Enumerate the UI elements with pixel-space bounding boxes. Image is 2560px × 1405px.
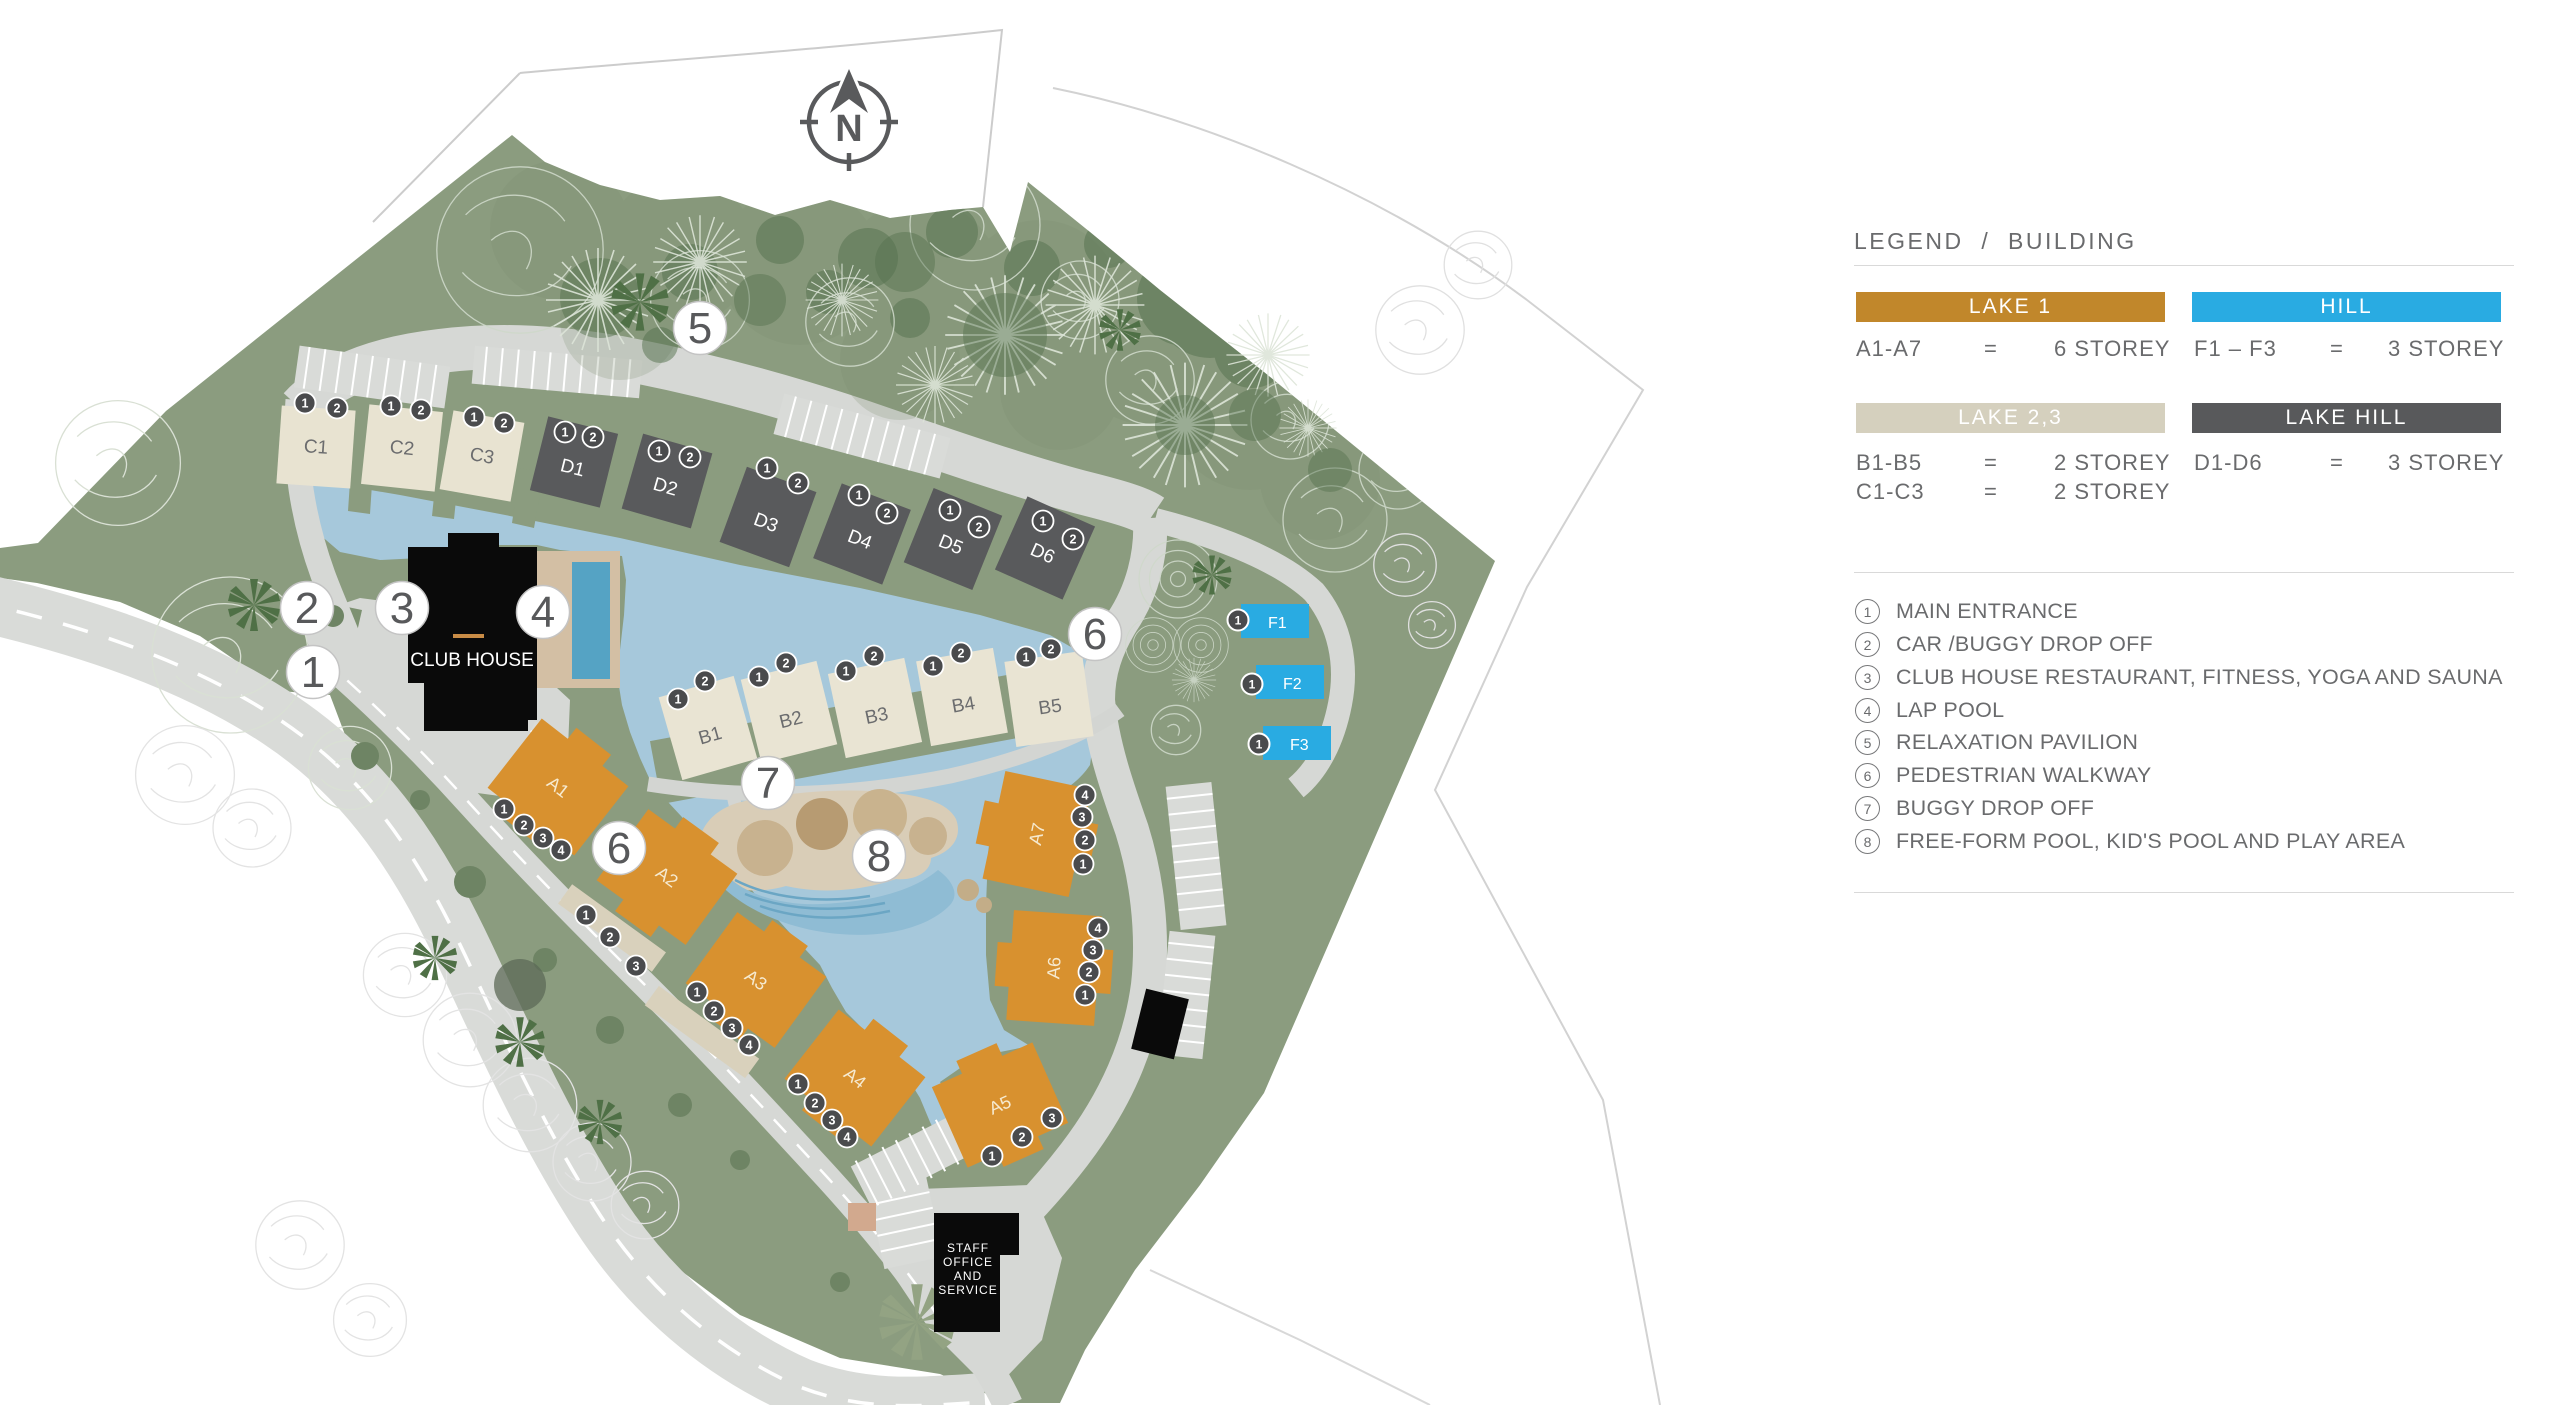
svg-text:1: 1 <box>302 397 309 411</box>
svg-text:1: 1 <box>675 693 682 707</box>
svg-text:2: 2 <box>1082 834 1089 848</box>
svg-text:1: 1 <box>989 1150 996 1164</box>
svg-text:5: 5 <box>688 304 712 353</box>
svg-text:C3: C3 <box>468 444 496 469</box>
svg-text:A6: A6 <box>1043 956 1064 979</box>
svg-text:B5: B5 <box>1037 695 1063 719</box>
svg-text:1: 1 <box>1040 515 1047 529</box>
svg-text:1: 1 <box>930 660 937 674</box>
svg-text:1: 1 <box>583 909 590 923</box>
svg-text:2: 2 <box>687 451 694 465</box>
svg-text:1: 1 <box>1256 738 1263 752</box>
svg-text:F2: F2 <box>1283 676 1302 693</box>
svg-text:2: 2 <box>958 647 965 661</box>
svg-text:2: 2 <box>1070 533 1077 547</box>
svg-text:2: 2 <box>1086 966 1093 980</box>
svg-text:4: 4 <box>844 1131 851 1145</box>
svg-text:2: 2 <box>590 431 597 445</box>
svg-text:AND: AND <box>954 1269 982 1283</box>
svg-text:2: 2 <box>501 417 508 431</box>
svg-text:1: 1 <box>1249 678 1256 692</box>
svg-text:2: 2 <box>521 819 528 833</box>
svg-text:2: 2 <box>702 675 709 689</box>
svg-text:7: 7 <box>756 759 780 808</box>
svg-text:1: 1 <box>656 445 663 459</box>
svg-text:STAFF: STAFF <box>947 1241 989 1255</box>
svg-text:1: 1 <box>1235 614 1242 628</box>
svg-text:2: 2 <box>976 521 983 535</box>
svg-text:1: 1 <box>795 1078 802 1092</box>
svg-text:1: 1 <box>1023 651 1030 665</box>
svg-text:1: 1 <box>1082 989 1089 1003</box>
svg-text:8: 8 <box>867 832 891 881</box>
svg-text:1: 1 <box>856 489 863 503</box>
svg-text:2: 2 <box>1019 1131 1026 1145</box>
svg-text:1: 1 <box>756 671 763 685</box>
svg-text:2: 2 <box>871 650 878 664</box>
svg-text:3: 3 <box>1090 944 1097 958</box>
svg-text:4: 4 <box>746 1039 753 1053</box>
svg-text:CLUB HOUSE: CLUB HOUSE <box>410 650 534 671</box>
svg-text:4: 4 <box>558 844 565 858</box>
svg-text:4: 4 <box>1082 789 1089 803</box>
svg-text:1: 1 <box>301 648 325 697</box>
svg-text:3: 3 <box>633 960 640 974</box>
svg-text:2: 2 <box>418 404 425 418</box>
svg-text:3: 3 <box>390 584 414 633</box>
svg-text:3: 3 <box>1079 811 1086 825</box>
svg-text:1: 1 <box>388 400 395 414</box>
svg-text:1: 1 <box>843 665 850 679</box>
svg-text:6: 6 <box>607 824 631 873</box>
svg-text:6: 6 <box>1083 610 1107 659</box>
svg-text:1: 1 <box>764 462 771 476</box>
svg-text:3: 3 <box>729 1022 736 1036</box>
svg-text:1: 1 <box>1080 858 1087 872</box>
svg-text:1: 1 <box>947 504 954 518</box>
svg-text:1: 1 <box>694 986 701 1000</box>
svg-text:N: N <box>835 108 862 150</box>
svg-text:2: 2 <box>711 1005 718 1019</box>
svg-text:2: 2 <box>795 477 802 491</box>
svg-text:F1: F1 <box>1268 615 1287 632</box>
svg-text:F3: F3 <box>1290 737 1309 754</box>
svg-text:2: 2 <box>783 657 790 671</box>
svg-text:3: 3 <box>1049 1112 1056 1126</box>
svg-text:2: 2 <box>1048 643 1055 657</box>
svg-text:2: 2 <box>607 931 614 945</box>
svg-text:4: 4 <box>531 588 555 637</box>
svg-text:C2: C2 <box>389 437 415 460</box>
svg-text:1: 1 <box>562 426 569 440</box>
svg-text:B4: B4 <box>950 693 977 718</box>
svg-text:2: 2 <box>295 584 319 633</box>
svg-text:OFFICE: OFFICE <box>943 1255 993 1269</box>
svg-text:1: 1 <box>501 803 508 817</box>
svg-text:SERVICE: SERVICE <box>938 1283 997 1297</box>
svg-text:2: 2 <box>334 402 341 416</box>
svg-text:3: 3 <box>540 832 547 846</box>
svg-text:2: 2 <box>812 1097 819 1111</box>
svg-text:1: 1 <box>471 411 478 425</box>
svg-text:3: 3 <box>829 1114 836 1128</box>
svg-text:2: 2 <box>884 507 891 521</box>
svg-text:C1: C1 <box>303 436 329 459</box>
svg-text:4: 4 <box>1095 922 1102 936</box>
